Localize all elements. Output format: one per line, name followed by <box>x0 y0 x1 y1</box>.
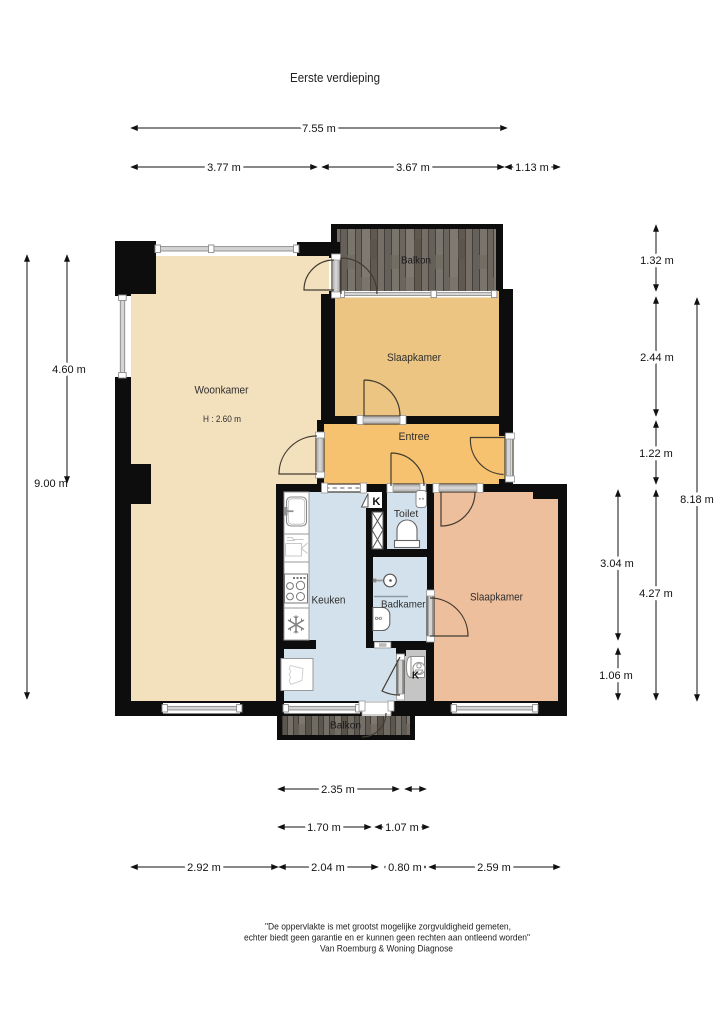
svg-text:1.70 m: 1.70 m <box>307 822 341 834</box>
svg-text:Balkon: Balkon <box>330 721 361 732</box>
svg-text:0.80 m: 0.80 m <box>388 862 422 874</box>
svg-text:H : 2.60 m: H : 2.60 m <box>203 414 241 425</box>
svg-text:2.35 m: 2.35 m <box>321 784 355 796</box>
svg-text:Entree: Entree <box>399 431 430 443</box>
svg-text:4.60 m: 4.60 m <box>52 364 86 376</box>
svg-text:K: K <box>412 671 420 682</box>
svg-text:Woonkamer: Woonkamer <box>195 385 249 397</box>
svg-text:8.18 m: 8.18 m <box>680 494 714 506</box>
svg-text:Slaapkamer: Slaapkamer <box>470 592 523 604</box>
svg-text:1.13 m: 1.13 m <box>515 162 549 174</box>
svg-text:K: K <box>372 496 380 508</box>
svg-text:4.27 m: 4.27 m <box>639 588 673 600</box>
svg-text:3.67 m: 3.67 m <box>396 162 430 174</box>
svg-text:Balkon: Balkon <box>401 256 431 267</box>
svg-text:7.55 m: 7.55 m <box>302 123 336 135</box>
svg-text:3.77 m: 3.77 m <box>207 162 241 174</box>
svg-text:2.04 m: 2.04 m <box>311 862 345 874</box>
svg-text:Toilet: Toilet <box>394 508 419 520</box>
svg-text:1.22 m: 1.22 m <box>639 448 673 460</box>
svg-text:Eerste verdieping: Eerste verdieping <box>290 71 380 85</box>
svg-text:Slaapkamer: Slaapkamer <box>387 352 441 364</box>
svg-text:1.07 m: 1.07 m <box>385 822 419 834</box>
svg-text:1.06 m: 1.06 m <box>599 670 633 682</box>
svg-text:1.32 m: 1.32 m <box>640 255 674 267</box>
svg-text:2.44 m: 2.44 m <box>640 352 674 364</box>
svg-text:"De oppervlakte is met grootst: "De oppervlakte is met grootst mogelijke… <box>265 922 511 932</box>
svg-text:9.00 m: 9.00 m <box>34 478 68 490</box>
svg-text:3.04 m: 3.04 m <box>600 558 634 570</box>
svg-text:Badkamer: Badkamer <box>381 599 426 611</box>
svg-text:2.92 m: 2.92 m <box>187 862 221 874</box>
svg-text:Van Roemburg & Woning Diagnose: Van Roemburg & Woning Diagnose <box>320 944 453 954</box>
svg-text:2.59 m: 2.59 m <box>477 862 511 874</box>
svg-text:Keuken: Keuken <box>312 595 346 607</box>
svg-text:echter biedt geen garantie en: echter biedt geen garantie en er kunnen … <box>244 933 530 943</box>
